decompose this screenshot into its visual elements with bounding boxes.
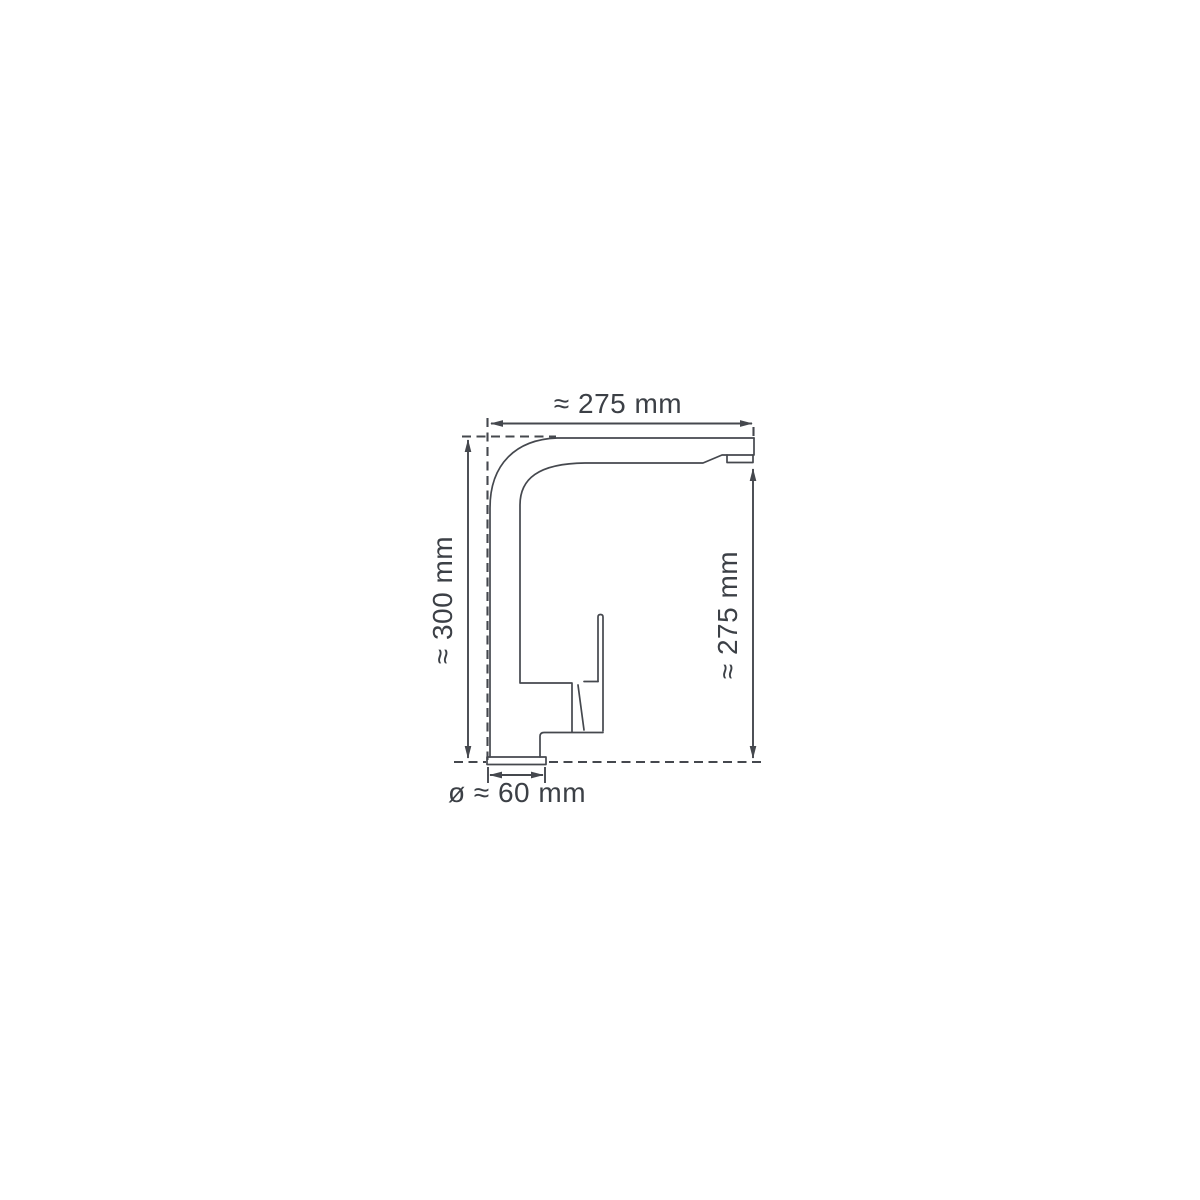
- dimension-label-base-diameter: ø ≈ 60 mm: [448, 777, 586, 808]
- dimension-label-right-height: ≈ 275 mm: [712, 551, 743, 679]
- faucet-base-flange: [487, 757, 546, 765]
- faucet-dimension-diagram: ≈ 275 mm ≈ 300 mm ≈ 275 mm ø ≈ 60 mm: [0, 0, 1200, 1200]
- faucet-cartridge-cap: [578, 685, 584, 730]
- dimension-arrows: [468, 424, 753, 784]
- faucet-housing-bottom: [540, 733, 603, 758]
- faucet-aerator: [727, 455, 753, 463]
- technical-drawing-canvas: ≈ 275 mm ≈ 300 mm ≈ 275 mm ø ≈ 60 mm: [0, 0, 1200, 1200]
- dimension-label-top-width: ≈ 275 mm: [554, 388, 682, 419]
- dimension-label-left-height: ≈ 300 mm: [427, 536, 458, 664]
- faucet-handle-lever: [598, 615, 603, 732]
- dimension-labels: ≈ 275 mm ≈ 300 mm ≈ 275 mm ø ≈ 60 mm: [427, 388, 743, 808]
